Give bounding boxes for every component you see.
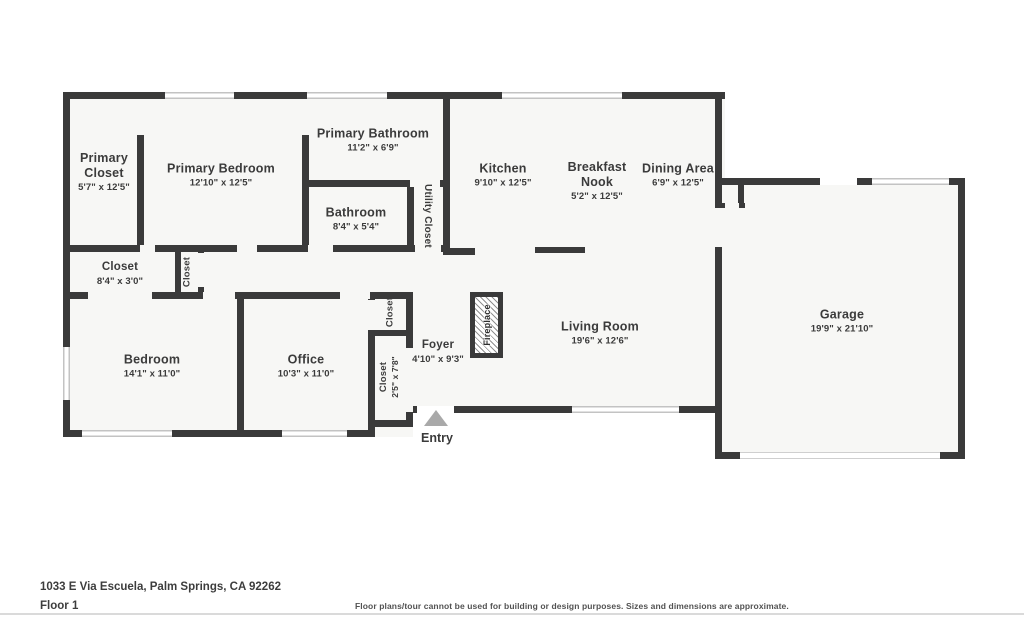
room-label-garage: Garage 19'9" x 21'10" [811,308,873,335]
door-opening [820,178,857,185]
footer-divider [0,613,1024,615]
door-opening [368,300,375,330]
window [500,92,624,99]
room-label-primary-bedroom: Primary Bedroom 12'10" x 12'5" [167,162,275,189]
door-opening [302,99,309,135]
door-opening [725,203,739,208]
door-opening [140,245,155,252]
wall [407,180,414,252]
window [163,92,236,99]
room-label-kitchen: Kitchen 9'10" x 12'5" [474,162,531,189]
room-label-office-closet-top: Closet [384,297,395,327]
room-label-dining-area: Dining Area 6'9" x 12'5" [642,162,714,189]
entry-arrow-icon [424,410,448,426]
door-opening [237,245,257,252]
wall [368,330,413,336]
room-label-primary-bathroom: Primary Bathroom 11'2" x 6'9" [317,127,429,154]
wall [443,248,475,255]
window [63,345,70,402]
door-opening [203,292,235,299]
room-label-bathroom: Bathroom 8'4" x 5'4" [326,206,387,233]
disclaimer-text: Floor plans/tour cannot be used for buil… [355,601,789,611]
floor-label: Floor 1 [40,600,78,612]
room-label-living-room: Living Room 19'6" x 12'6" [561,320,639,347]
entry-label: Entry [421,431,453,445]
fireplace-label: Fireplace [482,304,492,345]
room-label-hall-closet-small: Closet [181,257,192,287]
garage-door-opening [740,452,940,459]
door-opening [88,292,152,299]
wall [958,178,965,459]
wall [535,247,585,253]
window [80,430,174,437]
room-label-breakfast-nook: Breakfast Nook 5'2" x 12'5" [559,160,635,202]
window [305,92,389,99]
wall [237,292,244,437]
door-opening [198,253,204,287]
wall [368,420,413,427]
address-text: 1033 E Via Escuela, Palm Springs, CA 922… [40,581,281,593]
wall [175,245,181,299]
door-opening [308,245,333,252]
floor-plan: Fireplace Entry Primary Closet 5'7" x 12… [0,0,1024,623]
room-label-hall-closet: Closet 8'4" x 3'0" [97,261,143,287]
room-label-office: Office 10'3" x 11'0" [278,353,335,380]
wall [715,92,722,452]
room-label-primary-closet: Primary Closet 5'7" x 12'5" [69,151,139,193]
window [280,430,349,437]
room-label-bedroom: Bedroom 14'1" x 11'0" [124,353,181,380]
room-label-foyer: Foyer 4'10" x 9'3" [412,339,464,365]
window [570,406,681,413]
door-opening [340,292,370,299]
room-label-utility-closet: Utility Closet [421,184,433,248]
wall [443,92,450,254]
door-opening [137,99,144,135]
door-opening [715,208,722,247]
window [870,178,951,185]
fireplace: Fireplace [470,292,503,358]
room-label-office-closet-bottom: Closet 2'5" x 7'8" [378,356,400,398]
